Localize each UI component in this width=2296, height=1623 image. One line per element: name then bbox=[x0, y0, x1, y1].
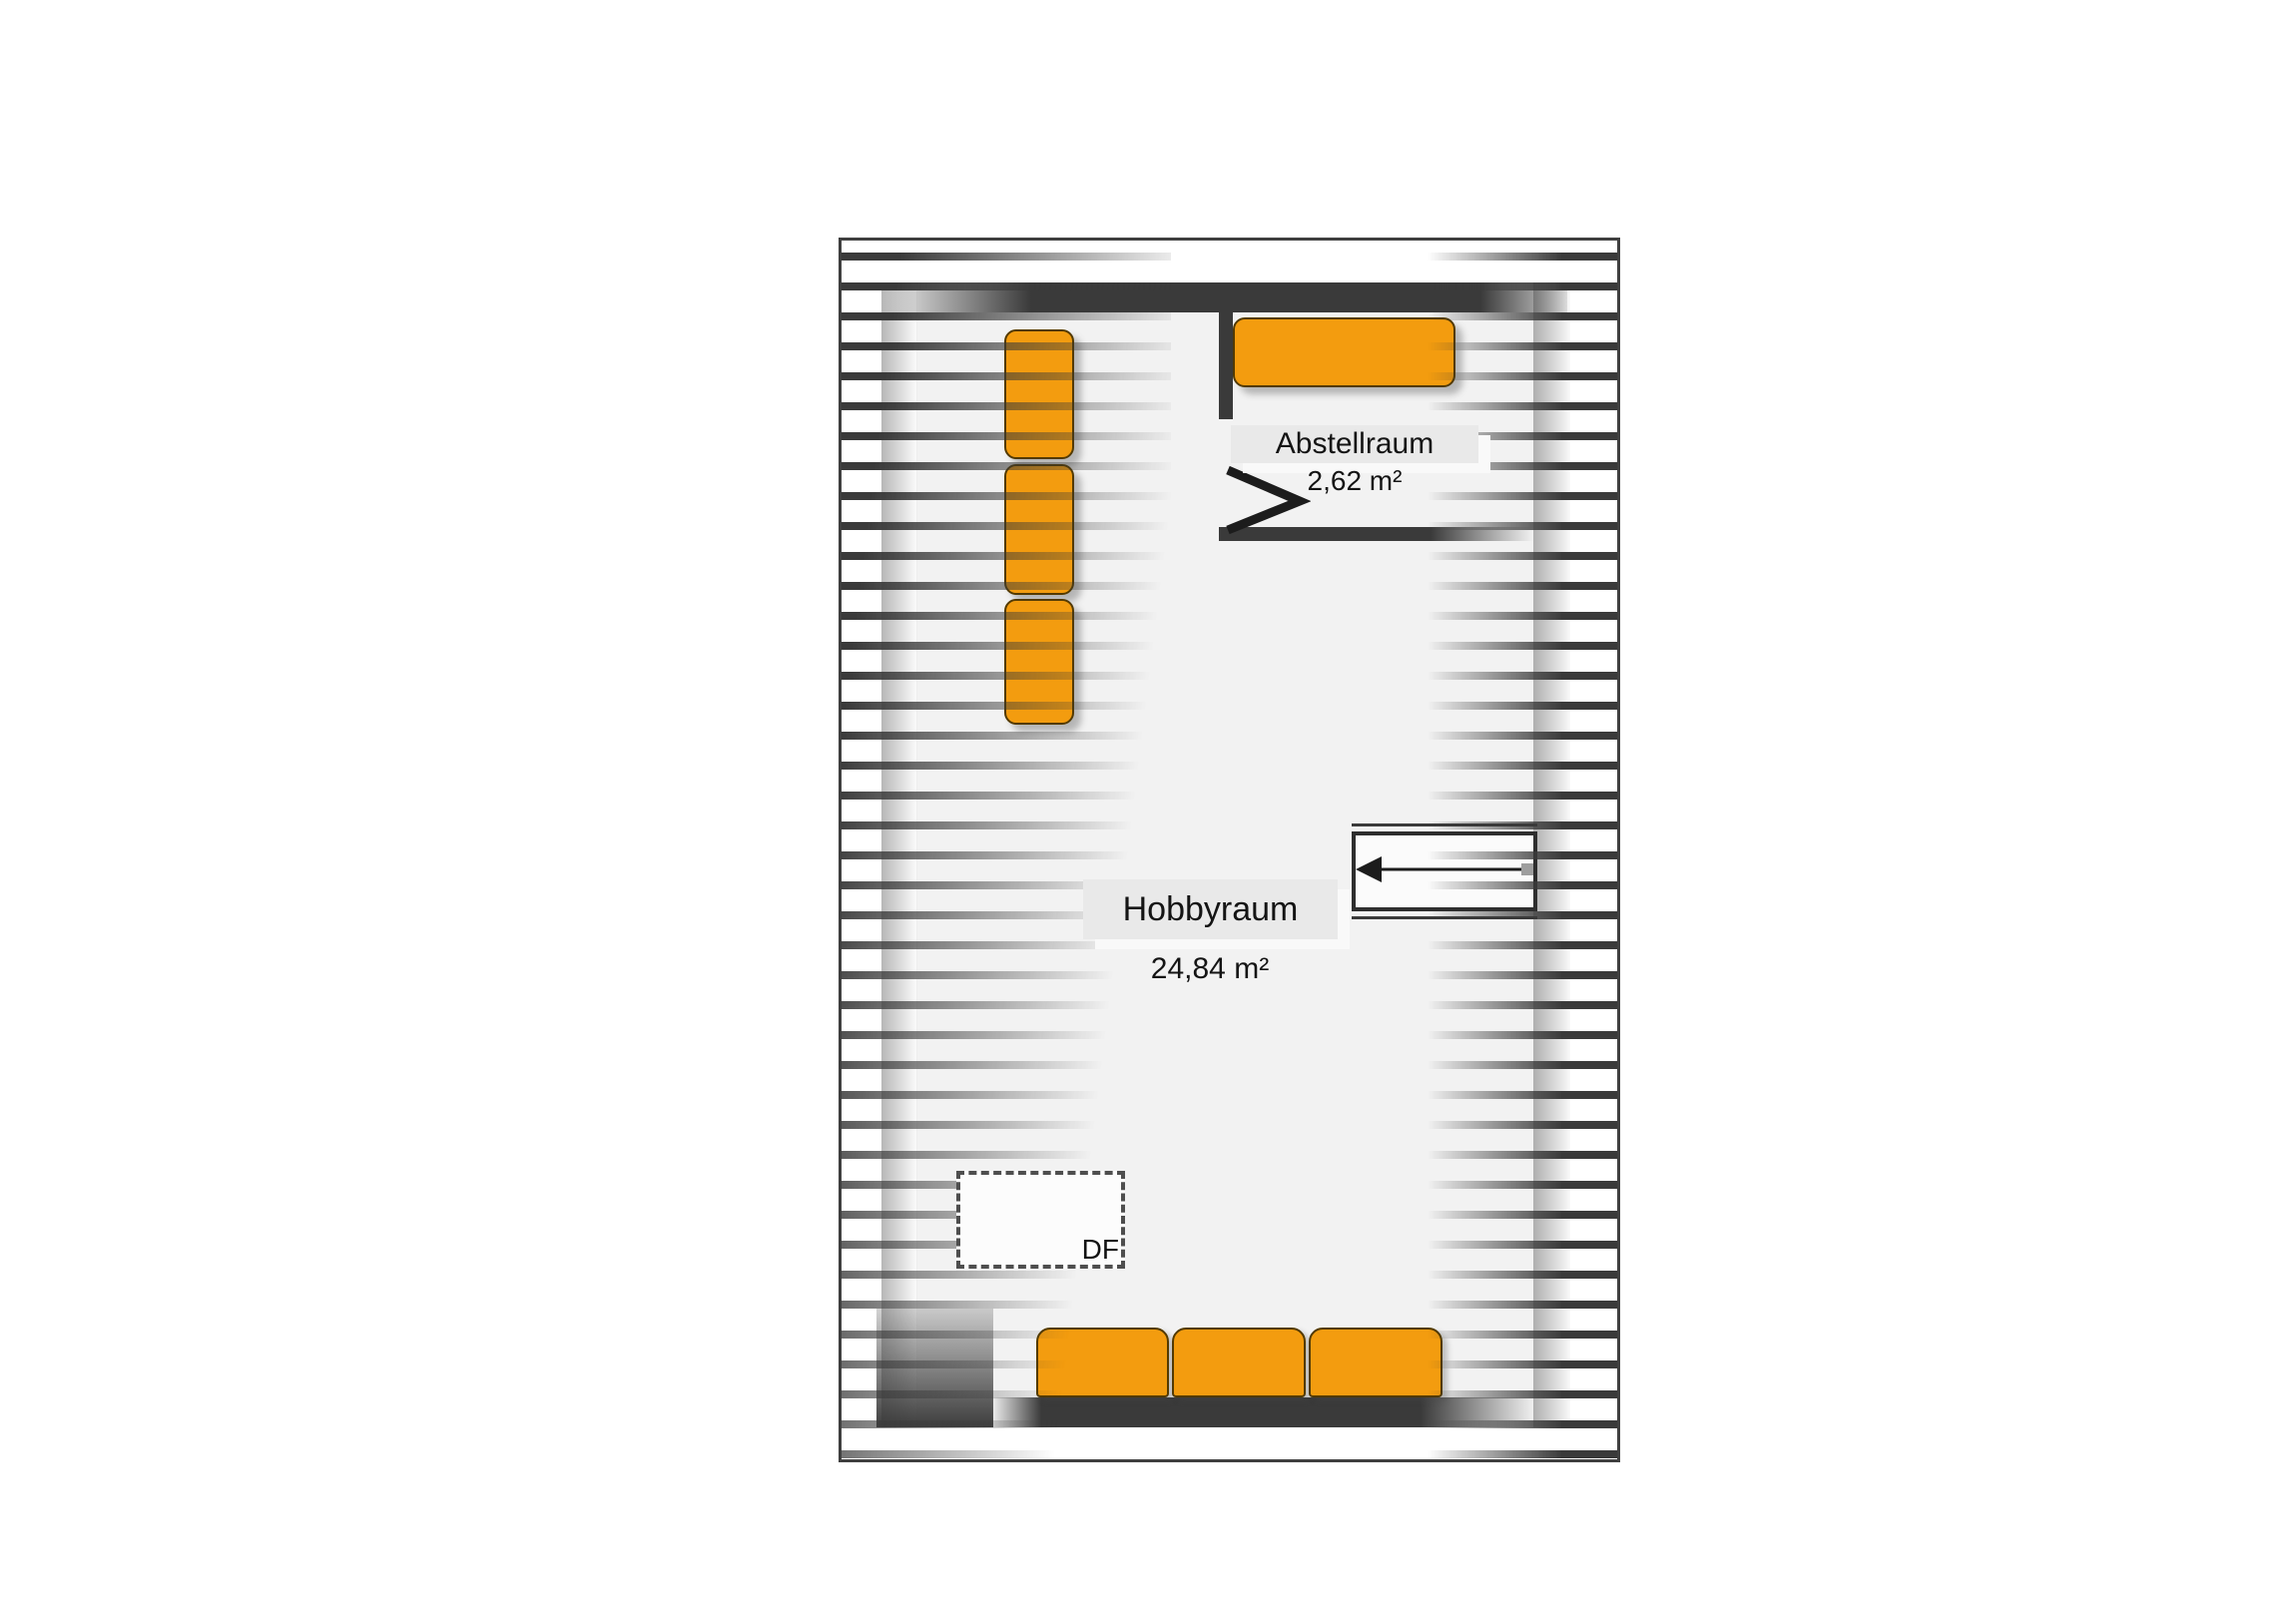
room-label-hobbyraum: Hobbyraum bbox=[1083, 879, 1338, 939]
room-corner-shadow-bottom-left bbox=[876, 1309, 993, 1427]
sofa-cushion-1 bbox=[1036, 1328, 1169, 1397]
wall-bottom bbox=[991, 1397, 1537, 1427]
room-area-hobbyraum: 24,84 m² bbox=[1110, 951, 1310, 987]
room-edge-shadow-left bbox=[881, 282, 917, 1427]
wall-abstellraum-vertical bbox=[1219, 312, 1233, 419]
roof-window-label: DF bbox=[1082, 1235, 1119, 1265]
stairs-direction-arrow-left bbox=[1352, 831, 1537, 911]
sofa-cushion-2 bbox=[1172, 1328, 1306, 1397]
room-edge-shadow-right bbox=[1533, 282, 1570, 1427]
storage-cabinet bbox=[1233, 317, 1455, 387]
stairs-side-line-top bbox=[1352, 823, 1537, 826]
room-area-abstellraum: 2,62 m² bbox=[1255, 464, 1454, 498]
wardrobe-segment-2 bbox=[1004, 464, 1074, 595]
wardrobe-segment-3 bbox=[1004, 599, 1074, 725]
page: { "plan": { "title": "attic-floor-plan",… bbox=[0, 0, 2296, 1623]
floor-plan: DF Abstellraum 2,62 m² Hobbyraum 24,84 m… bbox=[839, 238, 1620, 1462]
roof-window: DF bbox=[956, 1171, 1125, 1269]
wall-top bbox=[881, 282, 1567, 312]
room-label-abstellraum: Abstellraum bbox=[1231, 425, 1478, 463]
sofa-cushion-3 bbox=[1309, 1328, 1442, 1397]
stairs-side-line-bottom bbox=[1352, 916, 1537, 919]
wardrobe-segment-1 bbox=[1004, 329, 1074, 459]
